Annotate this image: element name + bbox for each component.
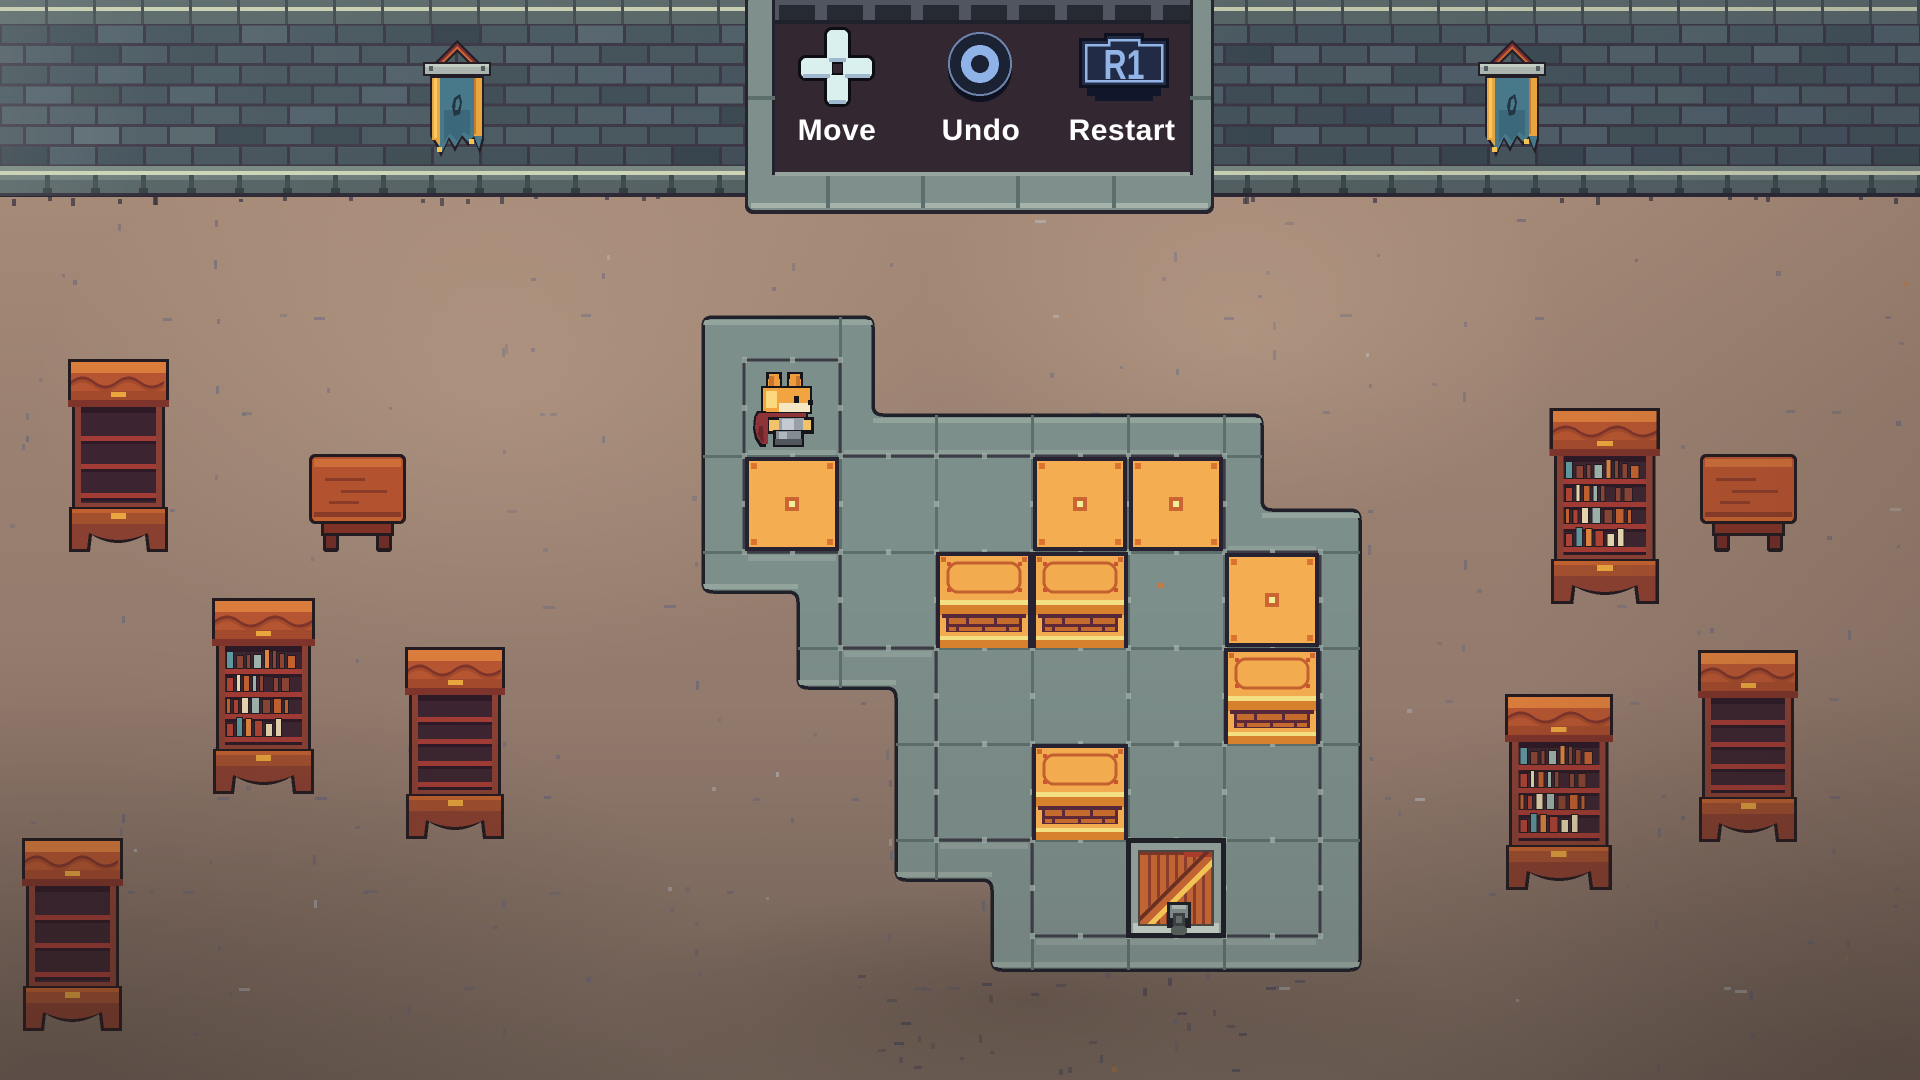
svg-text:Move: Move — [798, 114, 877, 147]
svg-text:Undo: Undo — [942, 114, 1021, 147]
svg-text:R1: R1 — [1104, 41, 1145, 88]
svg-text:Restart: Restart — [1069, 114, 1176, 147]
